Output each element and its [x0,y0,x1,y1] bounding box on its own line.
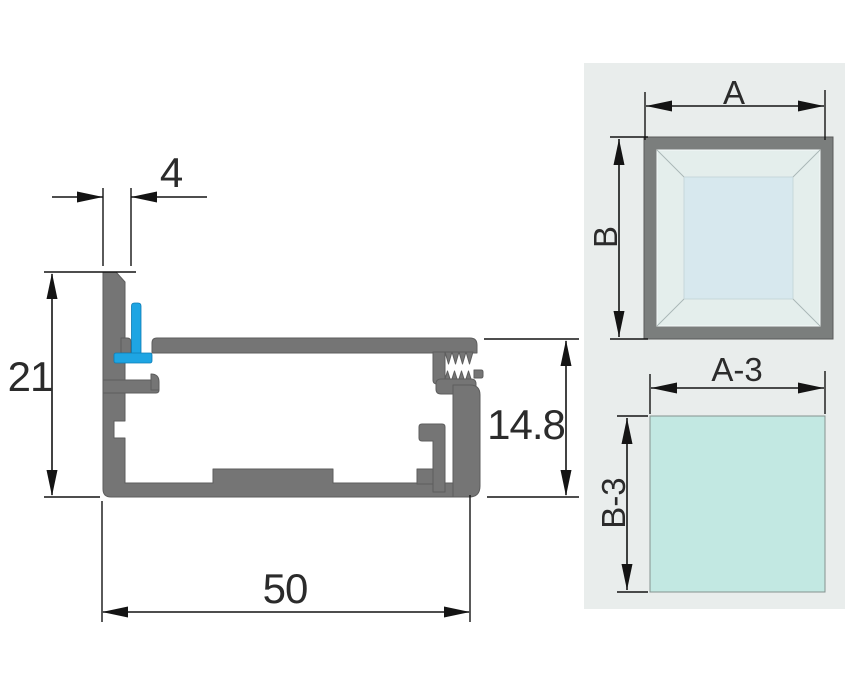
profile-right-wall [453,385,480,497]
technical-drawing-canvas: 4 21 14.8 50 [0,0,845,678]
dim-21-arrow-up [47,273,58,299]
dim-21-label: 21 [8,353,53,400]
drawing-svg: 4 21 14.8 50 [0,0,845,678]
gasket-base [114,353,152,363]
gasket-channel-lip [151,374,159,390]
glazing-hook-foot [417,469,433,484]
dim-50-label: 50 [263,565,308,612]
dim-4-arrow-right [131,192,157,203]
dim-14-8-label: 14.8 [487,401,565,448]
dim-14-8-arrow-down [561,470,572,496]
dim-4-label: 4 [160,149,183,196]
dim-50-arrow-left [102,607,128,618]
profile-inner-lip [121,338,131,353]
dim-21-arrow-down [47,470,58,496]
clamp-nub [474,370,483,378]
profile-web [152,338,477,353]
dim-4-arrow-left [77,192,103,203]
serration-upper-teeth [445,352,473,364]
frame-glass-center [684,177,793,299]
dim-b-label: B [587,226,624,248]
dimension-50: 50 [102,495,470,622]
dim-50-arrow-right [444,607,470,618]
dim-a3-label: A-3 [711,351,762,388]
gasket-stem [132,303,142,354]
dimension-14-8: 14.8 [484,339,579,497]
dim-a-label: A [723,74,745,111]
profile-cross-section [103,272,483,497]
dim-14-8-arrow-up [561,340,572,366]
glass-pane [650,416,825,592]
dim-b3-label: B-3 [595,477,632,528]
dimension-4: 4 [52,149,207,266]
